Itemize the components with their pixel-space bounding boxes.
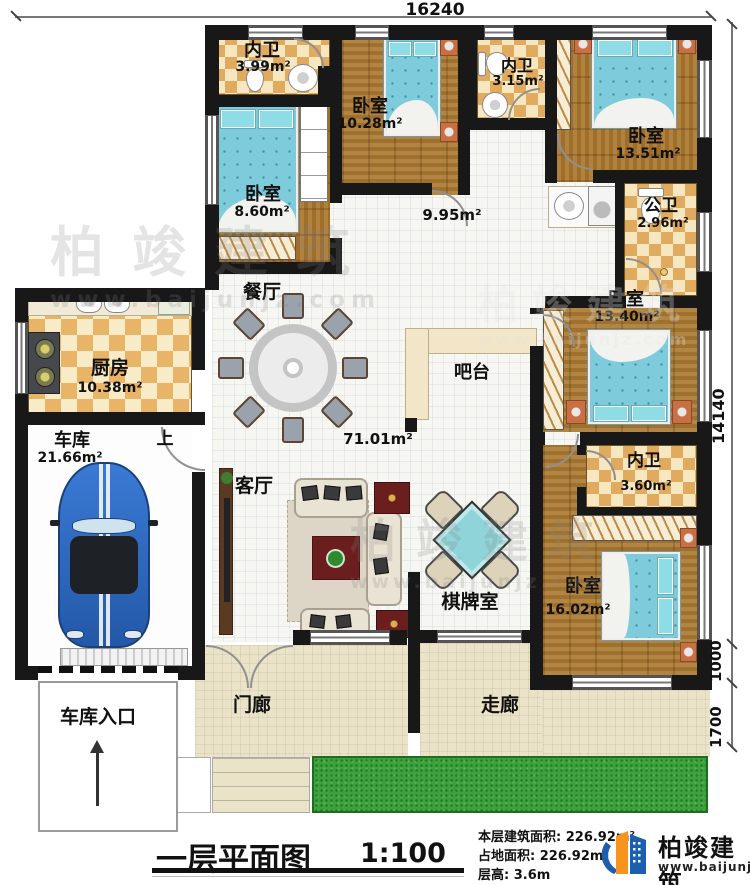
wall [593, 170, 709, 183]
porch-planter [177, 757, 211, 813]
nightstand [672, 400, 692, 424]
laundry-sink-icon [554, 192, 584, 220]
wall [318, 66, 330, 107]
wall [192, 288, 205, 370]
label-living: 客厅 [218, 477, 290, 496]
wall [408, 643, 420, 733]
wall [660, 296, 709, 308]
dining-table-center [283, 358, 303, 378]
wall [530, 308, 543, 314]
area-living-open: 71.01m² [330, 432, 426, 447]
dim-width: 16240 [395, 0, 475, 20]
brand-url: www.baijunjz.com [658, 860, 750, 874]
wall [467, 25, 477, 118]
tv-icon [224, 498, 230, 602]
window [572, 675, 672, 690]
nightstand [680, 642, 697, 662]
wall [530, 432, 543, 690]
label-bedroom-b: 卧室 [600, 128, 692, 146]
garage-grille [60, 648, 188, 666]
sink-icon [482, 92, 508, 118]
window [592, 25, 667, 40]
area-hallway: 9.95m² [406, 208, 498, 223]
wall [192, 472, 205, 680]
label-bar: 吧台 [440, 364, 504, 382]
area-bedroom-c: 8.60m² [217, 205, 307, 219]
brand-logo: 柏竣建筑 www.baijunjz.com [600, 822, 748, 882]
brand-name: 柏竣建筑 [658, 828, 748, 885]
area-garage: 21.66m² [22, 451, 118, 465]
side-table [374, 482, 410, 514]
brand-logo-icon [600, 824, 654, 880]
area-bedroom-d: 13.40m² [582, 310, 672, 324]
window [15, 322, 28, 394]
wall [530, 432, 545, 445]
washing-machine-icon [588, 186, 616, 226]
sofa-side [366, 512, 402, 606]
area-kitchen: 10.38m² [62, 381, 158, 395]
area-bedroom-b: 13.51m² [598, 147, 698, 161]
title-underline [152, 868, 464, 873]
wall [408, 630, 437, 643]
area-bath-b: 3.15m² [474, 75, 562, 88]
wall [330, 183, 432, 195]
wall [178, 666, 205, 680]
garage-entry-area [38, 681, 178, 832]
wall [530, 346, 543, 432]
dim-line-right [731, 22, 733, 748]
dining-chair [282, 417, 304, 443]
window [697, 60, 712, 138]
entry-arrow-head [90, 740, 104, 753]
window [437, 630, 522, 643]
wall [293, 630, 310, 645]
floor-plan: 内卫 3.99m² 卧室 10.28m² 内卫 3.15m² 卧室 13.51m… [0, 0, 750, 885]
label-dining: 餐厅 [226, 283, 298, 302]
wall [545, 25, 557, 170]
wall [672, 675, 712, 690]
wall [15, 394, 28, 680]
label-bedroom-c: 卧室 [225, 186, 301, 204]
dim-seg-1700: 1700 [707, 690, 725, 748]
dim-seg-1000: 1000 [707, 626, 725, 682]
floor-drain [660, 268, 668, 276]
nightstand [440, 122, 458, 142]
window [310, 630, 390, 645]
car [58, 462, 150, 648]
wall [580, 432, 710, 445]
window [355, 25, 389, 40]
nightstand [680, 528, 697, 548]
label-bath-a: 内卫 [224, 42, 300, 60]
wall [458, 183, 470, 195]
label-stairs-up: 上 [150, 431, 180, 448]
wall [15, 288, 205, 302]
area-bath-c: 3.60m² [600, 480, 692, 493]
wall [192, 412, 205, 425]
label-public-bath: 公卫 [622, 198, 700, 215]
bar-counter-leg [405, 328, 429, 420]
wall [545, 170, 557, 183]
stat-land-area: 占地面积: 226.92m² [478, 845, 609, 864]
area-public-bath: 2.96m² [615, 217, 711, 230]
plan-scale: 1:100 [360, 838, 446, 869]
bed-bedroom-e [602, 552, 680, 640]
wall [205, 262, 342, 274]
label-bedroom-a: 卧室 [330, 98, 410, 116]
wall [585, 507, 697, 515]
dining-chair [342, 357, 368, 379]
area-bedroom-e: 16.02m² [533, 603, 623, 617]
label-bath-b: 内卫 [479, 58, 555, 74]
closet-bedroom-e [572, 515, 697, 541]
title-underline-shadow [152, 876, 464, 877]
entry-arrow [96, 752, 99, 806]
area-bedroom-a: 10.28m² [328, 117, 412, 131]
dim-height: 14140 [709, 352, 728, 444]
window [205, 115, 219, 205]
bed-bedroom-d [588, 330, 670, 424]
label-garage-entry: 车库入口 [48, 708, 148, 727]
wall [15, 288, 28, 322]
bed-bedroom-b [592, 34, 676, 128]
wall [577, 445, 586, 455]
dining-chair [218, 357, 244, 379]
stove-icon [28, 332, 60, 394]
wall [390, 630, 407, 645]
window [484, 25, 514, 40]
label-garage: 车库 [34, 432, 110, 450]
wall [318, 25, 330, 37]
garage-door-dashed [38, 666, 178, 673]
sofa-main [294, 478, 368, 518]
stat-floor-height: 层高: 3.6m [478, 864, 550, 883]
label-bath-c: 内卫 [605, 453, 683, 470]
coffee-table-plant-icon [328, 551, 343, 566]
area-bath-a: 3.99m² [219, 60, 307, 74]
grass-strip [312, 756, 708, 813]
label-porch: 门廊 [216, 696, 288, 715]
corridor-floor [543, 690, 710, 757]
wardrobe-bedroom-c [300, 106, 328, 202]
porch-steps [212, 757, 310, 813]
label-chess: 棋牌室 [420, 593, 520, 612]
wall [697, 25, 712, 60]
dim-line-top [15, 16, 712, 18]
nightstand [566, 400, 586, 424]
label-kitchen: 厨房 [70, 359, 150, 378]
closet-bedroom-c [218, 236, 296, 260]
wall [15, 412, 205, 425]
wall [15, 666, 38, 680]
label-bedroom-e: 卧室 [545, 578, 621, 596]
wall [408, 572, 420, 630]
label-corridor: 走廊 [464, 696, 536, 715]
label-bedroom-d: 卧室 [588, 291, 664, 309]
